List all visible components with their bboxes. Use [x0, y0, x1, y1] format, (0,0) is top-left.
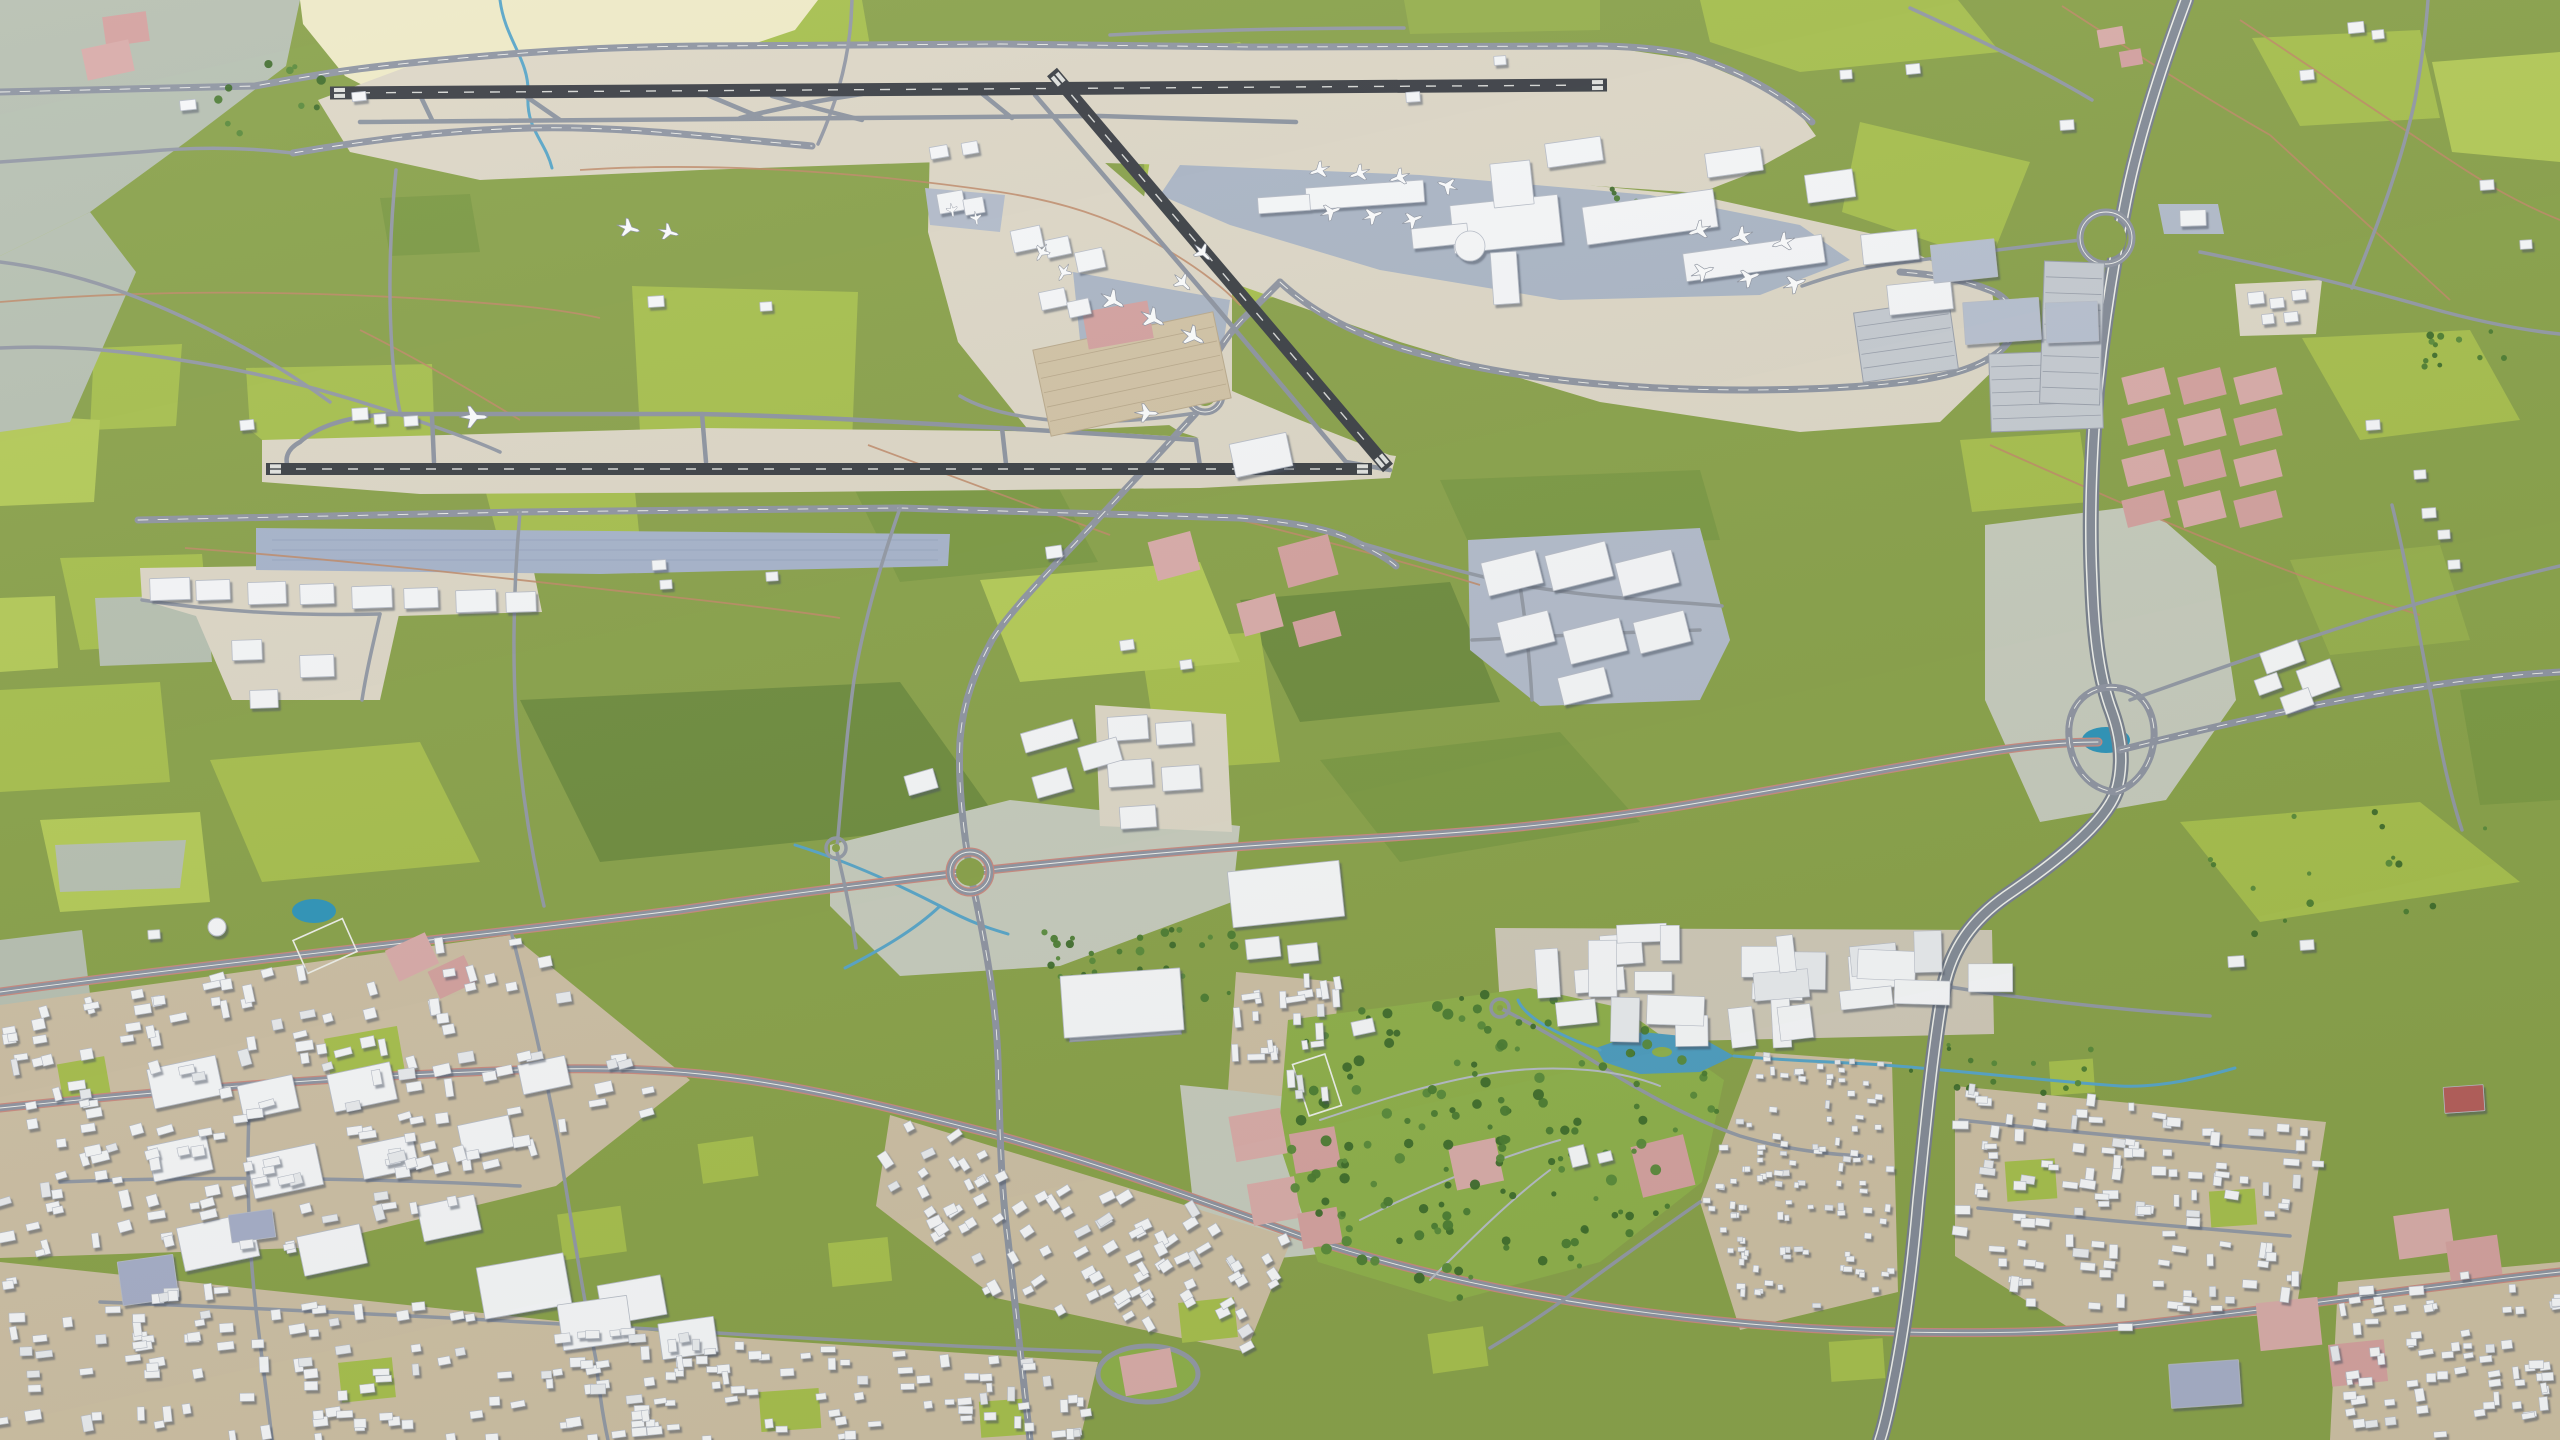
- house: [980, 1393, 988, 1405]
- house: [1914, 931, 1942, 973]
- house: [2089, 1117, 2103, 1123]
- house: [2416, 1405, 2428, 1414]
- building: [2520, 240, 2533, 250]
- house: [2515, 1306, 2524, 1314]
- house: [192, 1368, 203, 1379]
- house: [621, 1328, 635, 1335]
- house: [466, 1149, 480, 1160]
- tree: [2306, 899, 2314, 907]
- house: [2032, 1119, 2046, 1129]
- pink-field: [1247, 1176, 1302, 1226]
- house: [748, 1351, 761, 1360]
- green-space: [828, 1237, 892, 1287]
- house: [2365, 1420, 2378, 1428]
- house: [1881, 1272, 1889, 1277]
- building: [2180, 210, 2207, 227]
- tree: [2307, 871, 2311, 875]
- house: [764, 1419, 773, 1429]
- building: [248, 581, 287, 604]
- house: [731, 1386, 745, 1394]
- tree: [1599, 1062, 1608, 1071]
- tree: [1503, 1245, 1509, 1251]
- tree: [1546, 1127, 1554, 1135]
- house: [1287, 1070, 1296, 1088]
- house: [1051, 1430, 1066, 1438]
- house: [2437, 1371, 2448, 1379]
- tree: [2437, 333, 2444, 340]
- house: [56, 1138, 66, 1147]
- tree: [236, 130, 242, 136]
- tree: [1290, 1183, 1299, 1192]
- house: [641, 1410, 649, 1422]
- tree: [1641, 1026, 1650, 1035]
- tree: [264, 60, 272, 68]
- house: [9, 1313, 25, 1323]
- house: [2014, 1129, 2023, 1141]
- house: [204, 1283, 214, 1300]
- house: [2158, 1259, 2170, 1266]
- tree: [1321, 1244, 1332, 1255]
- tree: [1066, 940, 1074, 948]
- house: [374, 1191, 389, 1201]
- house: [1839, 1078, 1846, 1082]
- tree: [1444, 1167, 1449, 1172]
- tree: [1395, 1153, 1405, 1163]
- house: [336, 1410, 352, 1418]
- building: [1045, 545, 1063, 559]
- building: [232, 639, 263, 660]
- house: [497, 1371, 512, 1378]
- tree: [1041, 929, 1047, 935]
- tree: [1137, 934, 1143, 940]
- tree: [2251, 930, 2258, 937]
- tree: [1580, 1225, 1588, 1233]
- house: [412, 1364, 419, 1376]
- house: [2216, 1162, 2227, 1169]
- tree: [1307, 1173, 1316, 1182]
- house: [816, 1393, 827, 1400]
- tree: [1070, 936, 1075, 941]
- house: [2278, 1203, 2288, 1209]
- house: [243, 1161, 253, 1172]
- house: [2137, 1206, 2151, 1214]
- tree: [2081, 1066, 2087, 1072]
- house: [1744, 1250, 1748, 1256]
- tree: [2483, 826, 2487, 830]
- field-patch: [980, 562, 1240, 682]
- house: [2460, 1329, 2470, 1337]
- tree: [1454, 1266, 1463, 1275]
- building: [2480, 180, 2495, 191]
- city-map-canvas[interactable]: [0, 0, 2560, 1440]
- house: [240, 1393, 255, 1401]
- tree: [1702, 1071, 1708, 1077]
- house: [626, 1394, 643, 1404]
- building: [2270, 297, 2285, 308]
- tree: [1909, 1069, 1913, 1073]
- map-svg[interactable]: [0, 0, 2560, 1440]
- house: [2283, 1158, 2299, 1166]
- tree: [1321, 1101, 1329, 1109]
- house: [303, 1368, 318, 1378]
- tree: [1321, 1197, 1329, 1205]
- tree: [2208, 857, 2213, 862]
- house: [2358, 1377, 2372, 1386]
- building: [196, 579, 231, 600]
- house: [28, 1385, 41, 1392]
- house: [1825, 1205, 1834, 1211]
- house: [1753, 969, 1810, 1002]
- house: [95, 1334, 106, 1344]
- tree: [2423, 358, 2428, 363]
- building: [652, 560, 667, 571]
- tree: [1047, 962, 1054, 969]
- house: [1808, 1205, 1814, 1209]
- tree: [1208, 935, 1213, 940]
- house: [92, 1412, 102, 1421]
- building: [660, 580, 673, 590]
- house: [455, 1347, 466, 1356]
- tree: [1227, 991, 1231, 995]
- house: [436, 1013, 449, 1024]
- house: [2080, 1262, 2095, 1271]
- house: [668, 1339, 677, 1352]
- house: [2385, 1417, 2397, 1426]
- house: [2109, 1244, 2118, 1258]
- building: [1840, 70, 1853, 80]
- house: [2153, 1281, 2164, 1287]
- tree: [1227, 931, 1236, 940]
- tree: [1690, 1092, 1697, 1099]
- house: [986, 1383, 992, 1392]
- house: [1295, 1090, 1303, 1099]
- house: [1976, 1096, 1988, 1103]
- pink-field: [2393, 1208, 2455, 1259]
- house: [647, 1426, 663, 1435]
- house: [1293, 1013, 1301, 1025]
- house: [259, 1357, 269, 1373]
- roundabout-island: [2086, 218, 2126, 258]
- tree: [1382, 1008, 1392, 1018]
- house: [91, 1233, 100, 1248]
- house: [707, 1367, 718, 1373]
- house: [379, 1413, 393, 1421]
- house: [2183, 1296, 2197, 1303]
- house: [1728, 1006, 1756, 1048]
- tree: [2040, 1090, 2046, 1096]
- house: [51, 1189, 63, 1199]
- house: [2152, 1166, 2167, 1175]
- field-patch: [1404, 0, 1600, 34]
- house: [1757, 1151, 1763, 1155]
- tree: [1089, 958, 1096, 965]
- tree: [225, 84, 232, 91]
- house: [271, 1309, 281, 1320]
- house: [854, 1392, 864, 1401]
- house: [868, 1421, 881, 1427]
- house: [747, 1389, 758, 1395]
- house: [219, 1323, 233, 1333]
- house: [402, 1420, 414, 1429]
- roundabout-island: [956, 858, 984, 886]
- house: [1872, 1287, 1879, 1292]
- roundabout-island: [832, 844, 840, 852]
- house: [1753, 1265, 1759, 1272]
- building: [1245, 936, 1281, 959]
- house: [1739, 1259, 1744, 1265]
- house: [1984, 1160, 1994, 1169]
- tree: [1606, 1174, 1617, 1185]
- tree: [1383, 1197, 1393, 1207]
- house: [960, 1415, 972, 1421]
- house: [1332, 989, 1340, 1007]
- tree: [1384, 1038, 1394, 1048]
- house: [1780, 1141, 1788, 1147]
- house: [1843, 1266, 1852, 1272]
- house: [2022, 1279, 2031, 1286]
- house: [429, 998, 441, 1015]
- house: [1736, 1119, 1744, 1124]
- house: [404, 1132, 416, 1142]
- green-space: [2049, 1059, 2095, 1096]
- house: [2072, 1248, 2088, 1258]
- house: [2406, 1380, 2418, 1387]
- tree: [1484, 1026, 1492, 1034]
- tree: [1946, 1043, 1950, 1047]
- house: [1747, 1123, 1752, 1127]
- building: [2060, 120, 2075, 131]
- field-patch: [380, 194, 480, 256]
- house: [2224, 1190, 2239, 1200]
- tree: [1176, 927, 1182, 933]
- house: [2343, 1391, 2356, 1400]
- house: [2035, 1262, 2044, 1269]
- house: [434, 937, 444, 954]
- building: [760, 302, 773, 312]
- tree: [1443, 1220, 1454, 1231]
- house: [1736, 1283, 1745, 1289]
- tree: [1200, 994, 1209, 1003]
- reservoir: [256, 528, 950, 574]
- house: [901, 1383, 915, 1389]
- tree: [1636, 1139, 1646, 1149]
- tree: [1442, 1211, 1451, 1220]
- house: [220, 978, 233, 990]
- tree: [1315, 1209, 1323, 1217]
- tree: [1642, 1039, 1652, 1049]
- house: [354, 1304, 364, 1321]
- house: [2345, 1408, 2355, 1416]
- tree: [1497, 1039, 1508, 1050]
- building: [1161, 765, 1201, 792]
- house: [556, 991, 572, 1003]
- house: [2225, 1297, 2234, 1304]
- house: [396, 1310, 409, 1321]
- tree: [1442, 1263, 1452, 1273]
- house: [957, 1397, 971, 1405]
- house: [1635, 972, 1672, 991]
- house: [590, 1384, 605, 1394]
- tree: [1561, 1239, 1571, 1249]
- house: [482, 1070, 497, 1081]
- house: [2162, 1231, 2175, 1237]
- tree: [2372, 809, 2378, 815]
- house: [1859, 1272, 1864, 1277]
- house: [2101, 1147, 2115, 1154]
- house: [1863, 1081, 1869, 1086]
- house: [191, 1145, 205, 1157]
- tree: [1439, 1202, 1445, 1208]
- tree: [1444, 1182, 1451, 1189]
- tree: [1404, 1118, 1410, 1124]
- house: [314, 1433, 322, 1440]
- house: [1775, 1181, 1783, 1187]
- tree: [1321, 1135, 1332, 1146]
- house: [2353, 1323, 2362, 1336]
- house: [1777, 1212, 1783, 1220]
- house: [1827, 1117, 1832, 1122]
- house: [845, 1431, 856, 1440]
- building: [961, 141, 979, 156]
- tree: [1117, 949, 1123, 955]
- house: [398, 1068, 416, 1081]
- house: [1859, 1189, 1867, 1194]
- house: [776, 1426, 788, 1432]
- house: [41, 1054, 54, 1067]
- green-space: [1427, 1326, 1488, 1373]
- house: [2406, 1339, 2416, 1346]
- house: [2, 1280, 14, 1290]
- tree: [1545, 1019, 1552, 1026]
- tree: [1357, 1254, 1368, 1265]
- house: [892, 1351, 905, 1357]
- house: [131, 989, 144, 1000]
- building: [1155, 721, 1192, 745]
- house: [359, 1383, 374, 1393]
- house: [2312, 1161, 2324, 1167]
- house: [1984, 1144, 1997, 1149]
- house: [917, 1375, 931, 1383]
- building: [2300, 940, 2315, 951]
- house: [2485, 1344, 2494, 1353]
- house: [489, 1396, 500, 1405]
- house: [24, 1409, 41, 1421]
- house: [2515, 1379, 2525, 1385]
- house: [1730, 1179, 1736, 1184]
- house: [581, 1360, 594, 1369]
- house: [1794, 1182, 1799, 1188]
- tree: [1625, 1229, 1633, 1237]
- building: [1287, 942, 1319, 963]
- tree: [1339, 1173, 1349, 1183]
- house: [316, 1044, 327, 1055]
- tree: [2088, 1047, 2094, 1053]
- house: [704, 1348, 716, 1354]
- house: [828, 1358, 836, 1370]
- tree: [1638, 1116, 1647, 1125]
- tree: [1136, 947, 1145, 956]
- house: [2359, 1285, 2374, 1295]
- tree: [1472, 1099, 1482, 1109]
- house: [958, 1406, 972, 1414]
- tree: [1364, 1141, 1372, 1149]
- house: [1744, 1166, 1750, 1172]
- tree: [2283, 919, 2287, 923]
- house: [94, 1170, 107, 1180]
- house: [2191, 1190, 2196, 1200]
- house: [200, 1310, 211, 1319]
- house: [2215, 1171, 2230, 1178]
- tree: [1618, 1209, 1623, 1214]
- house: [40, 1182, 51, 1198]
- house: [2488, 1379, 2501, 1387]
- house: [1317, 1004, 1324, 1017]
- building: [1930, 239, 1998, 283]
- house: [1789, 1160, 1796, 1165]
- tree: [1468, 1275, 1473, 1280]
- house: [2277, 1124, 2290, 1132]
- house: [2441, 1351, 2453, 1358]
- house: [2124, 1148, 2133, 1157]
- building: [374, 414, 387, 425]
- house: [2172, 1245, 2187, 1253]
- house: [2071, 1115, 2078, 1129]
- building: [2366, 420, 2381, 431]
- tree: [1625, 1212, 1634, 1221]
- pink-field: [2445, 1235, 2502, 1282]
- house: [1849, 1059, 1855, 1064]
- house: [2365, 1319, 2378, 1324]
- house: [505, 982, 517, 992]
- tree: [292, 64, 297, 69]
- tree: [1579, 1060, 1586, 1067]
- house: [696, 1356, 707, 1364]
- tree: [2430, 903, 2437, 910]
- house: [27, 1370, 40, 1377]
- tree: [1161, 928, 1170, 937]
- house: [1007, 1387, 1014, 1401]
- tree: [1342, 1158, 1347, 1163]
- house: [964, 1373, 978, 1380]
- house: [800, 1353, 810, 1359]
- house: [2384, 1399, 2395, 1406]
- house: [2009, 1276, 2019, 1293]
- house: [1535, 948, 1561, 998]
- house: [644, 1377, 655, 1387]
- tree: [1459, 1015, 1466, 1022]
- house: [2369, 1347, 2380, 1357]
- house: [1304, 974, 1310, 988]
- tree: [2501, 355, 2507, 361]
- house: [1786, 1200, 1792, 1204]
- house: [2501, 1340, 2513, 1350]
- house: [1952, 1121, 1968, 1129]
- house: [1588, 940, 1617, 997]
- house: [125, 1354, 141, 1362]
- tree: [2421, 363, 2427, 369]
- house: [153, 995, 166, 1005]
- building: [352, 585, 393, 608]
- house: [79, 1368, 93, 1376]
- house: [252, 1339, 264, 1348]
- house: [1794, 1246, 1803, 1252]
- tree: [1538, 1256, 1548, 1266]
- house: [558, 1119, 567, 1133]
- house: [2023, 1259, 2036, 1266]
- house: [2037, 1102, 2046, 1109]
- building: [2448, 560, 2461, 570]
- house: [443, 968, 456, 977]
